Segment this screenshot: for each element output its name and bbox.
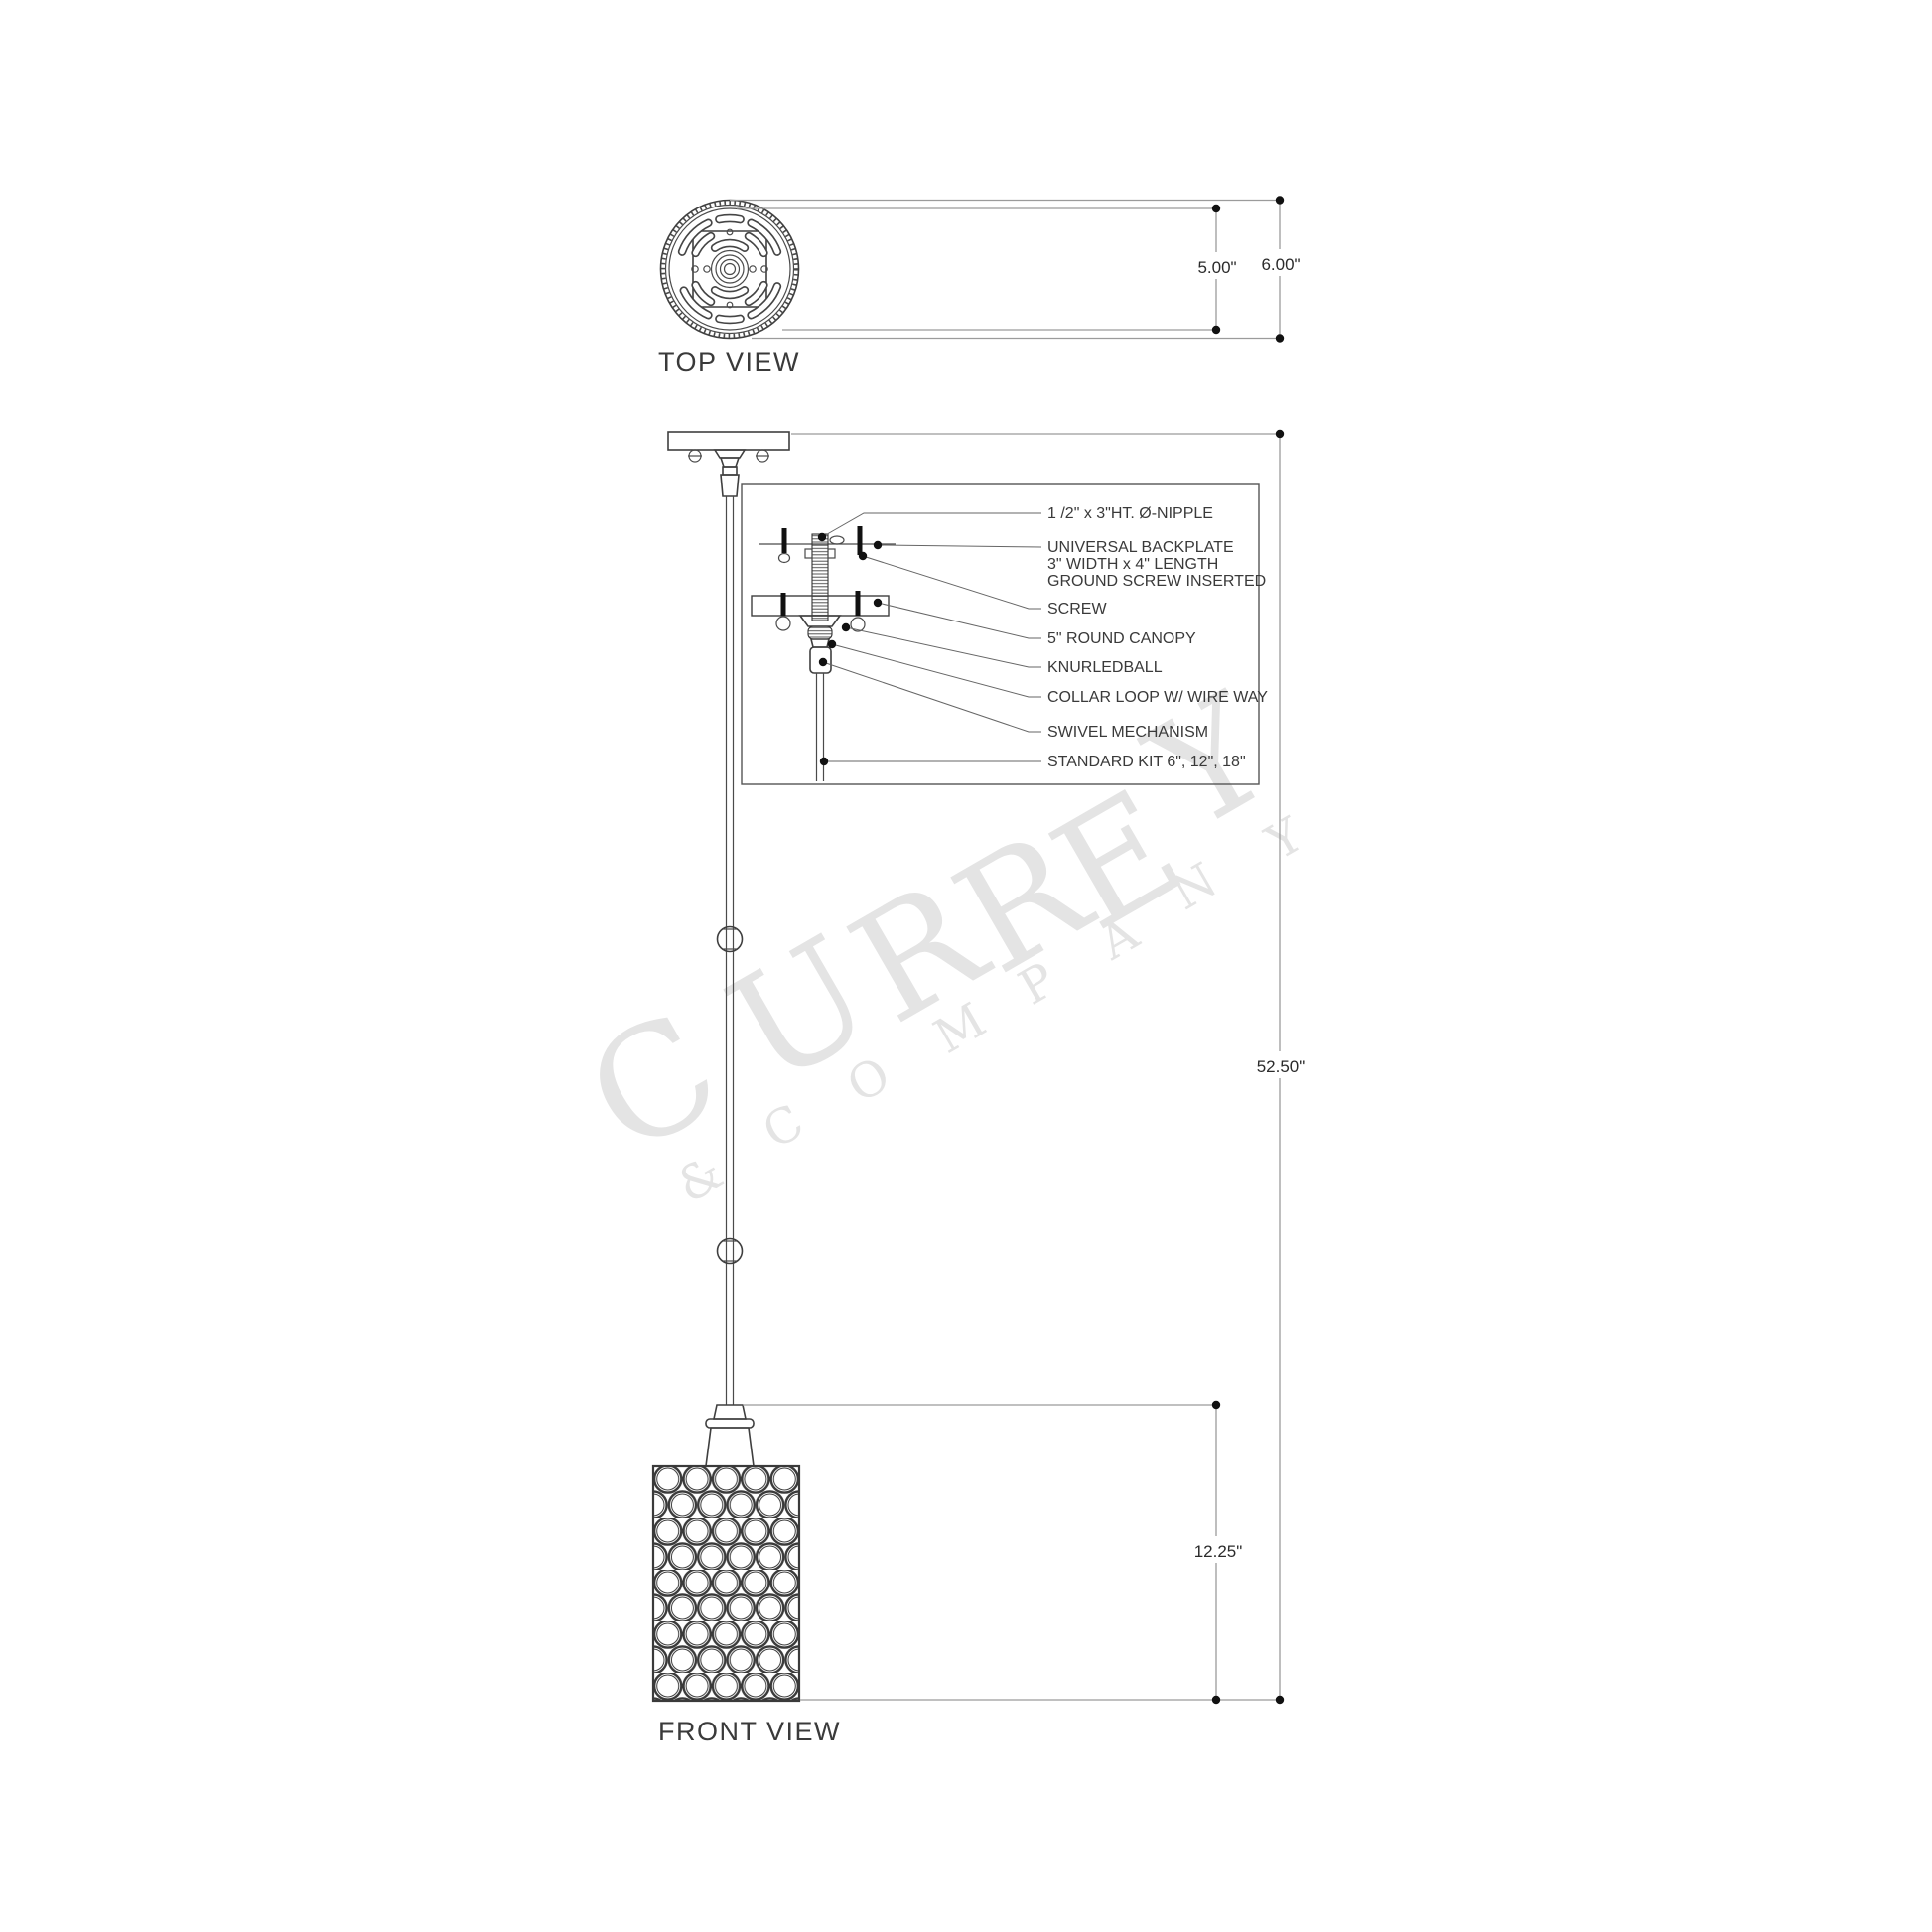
dimension-shade-height: 12.25" — [1194, 1542, 1243, 1561]
callout-swivel: SWIVEL MECHANISM — [1047, 724, 1208, 741]
canopy-ring-inner-edge — [666, 206, 794, 334]
nipple-nut — [805, 549, 812, 558]
callout-screw: SCREW — [1047, 601, 1107, 618]
center-hub-nipple — [721, 260, 740, 279]
leader-lines — [818, 513, 1041, 765]
callout-backplate-line1: UNIVERSAL BACKPLATE — [1047, 539, 1234, 556]
watermark: C U R R E Y & C O M P A N Y — [559, 661, 1313, 1214]
collar-loop — [811, 639, 829, 647]
pendant-shade — [653, 1466, 799, 1701]
detail-callout-box: 1 /2" x 3"HT. Ø-NIPPLE UNIVERSAL BACKPLA… — [742, 484, 1268, 784]
rod-ball-connector — [718, 1239, 743, 1264]
top-view-label: TOP VIEW — [658, 347, 800, 377]
technical-drawing-svg: C U R R E Y & C O M P A N Y — [0, 0, 1932, 1932]
center-hub-hole — [725, 264, 736, 275]
canopy-screw-head — [776, 617, 790, 630]
canopy-face — [669, 208, 790, 330]
callout-round-canopy: 5" ROUND CANOPY — [1047, 630, 1196, 647]
callout-backplate-line3: GROUND SCREW INSERTED — [1047, 573, 1266, 590]
dimension-canopy-inner: 5.00" — [1197, 258, 1236, 277]
rod-ball-connector — [718, 927, 743, 952]
ceiling-canopy-plate — [668, 432, 789, 450]
callout-knurled-ball: KNURLEDBALL — [1047, 659, 1163, 676]
callout-standard-kit: STANDARD KIT 6", 12", 18" — [1047, 754, 1246, 770]
knurled-ball — [808, 626, 832, 639]
canopy-screw — [756, 450, 769, 462]
screw-hole — [727, 229, 733, 235]
callout-collar-loop: COLLAR LOOP W/ WIRE WAY — [1047, 689, 1268, 706]
screw-hole — [704, 266, 710, 272]
nipple-nut — [828, 549, 835, 558]
detail-hardware-drawing — [752, 526, 896, 781]
top-view-dimensions: 5.00" 6.00" — [730, 196, 1308, 342]
callout-nipple: 1 /2" x 3"HT. Ø-NIPPLE — [1047, 505, 1213, 522]
drawing-canvas: C U R R E Y & C O M P A N Y — [0, 0, 1932, 1932]
front-view-label: FRONT VIEW — [658, 1717, 841, 1746]
watermark-letter: C — [559, 979, 747, 1188]
threaded-nipple — [812, 534, 828, 621]
callout-backplate-line2: 3" WIDTH x 4" LENGTH — [1047, 556, 1218, 573]
center-hub — [712, 251, 749, 288]
screw-hole — [750, 266, 756, 272]
socket-holder — [706, 1405, 754, 1466]
ground-screw — [830, 536, 844, 544]
backplate-slots-outer-core — [682, 218, 777, 320]
bolt-head — [779, 554, 790, 563]
stem-collar — [715, 450, 745, 496]
canopy-screw — [688, 450, 702, 462]
top-view — [661, 201, 799, 339]
dimension-overall-height: 52.50" — [1257, 1057, 1306, 1076]
dimension-canopy-outer: 6.00" — [1261, 255, 1300, 274]
